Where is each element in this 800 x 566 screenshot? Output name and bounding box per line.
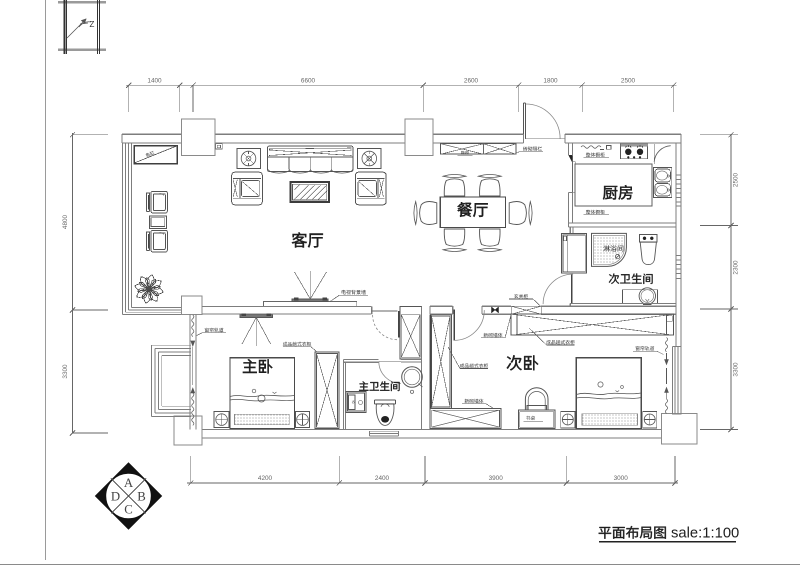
svg-text:2500: 2500 — [621, 78, 636, 85]
svg-text:sale:1:100: sale:1:100 — [671, 526, 739, 542]
svg-text:A: A — [124, 476, 134, 490]
svg-text:B: B — [137, 490, 146, 504]
svg-text:D: D — [111, 490, 120, 504]
svg-text:3300: 3300 — [62, 364, 69, 379]
svg-text:2500: 2500 — [733, 172, 740, 187]
svg-text:4200: 4200 — [258, 475, 273, 482]
svg-text:1400: 1400 — [147, 78, 162, 85]
svg-text:2600: 2600 — [464, 78, 479, 85]
svg-text:1800: 1800 — [543, 78, 558, 85]
svg-text:2300: 2300 — [733, 260, 740, 275]
svg-text:4800: 4800 — [62, 214, 69, 229]
svg-text:3900: 3900 — [489, 475, 504, 482]
svg-text:Z: Z — [90, 20, 95, 29]
svg-text:3000: 3000 — [614, 475, 629, 482]
svg-text:6600: 6600 — [301, 78, 316, 85]
svg-text:C: C — [124, 503, 133, 517]
svg-text:2400: 2400 — [375, 475, 390, 482]
svg-text:3300: 3300 — [733, 362, 740, 377]
